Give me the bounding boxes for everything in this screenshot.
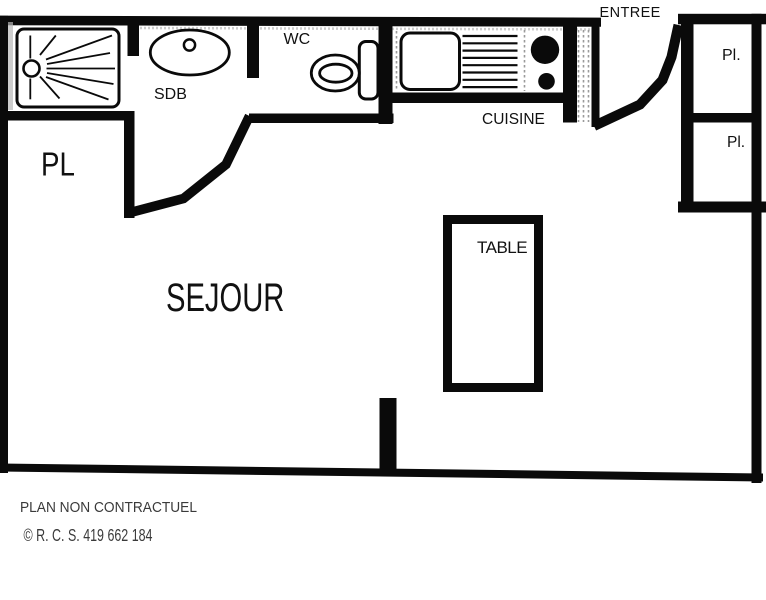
svg-text:WC: WC — [284, 31, 311, 48]
svg-text:PLAN NON CONTRACTUEL: PLAN NON CONTRACTUEL — [20, 499, 197, 516]
svg-text:ENTREE: ENTREE — [600, 5, 661, 21]
svg-text:CUISINE: CUISINE — [482, 111, 545, 128]
svg-text:SEJOUR: SEJOUR — [166, 276, 284, 321]
svg-text:© R. C. S. 419 662 184: © R. C. S. 419 662 184 — [24, 526, 153, 546]
svg-text:Pl.: Pl. — [727, 134, 745, 151]
svg-text:PL: PL — [41, 146, 75, 183]
svg-text:SDB: SDB — [154, 86, 187, 103]
svg-text:TABLE: TABLE — [477, 238, 527, 257]
svg-text:Pl.: Pl. — [722, 47, 741, 64]
